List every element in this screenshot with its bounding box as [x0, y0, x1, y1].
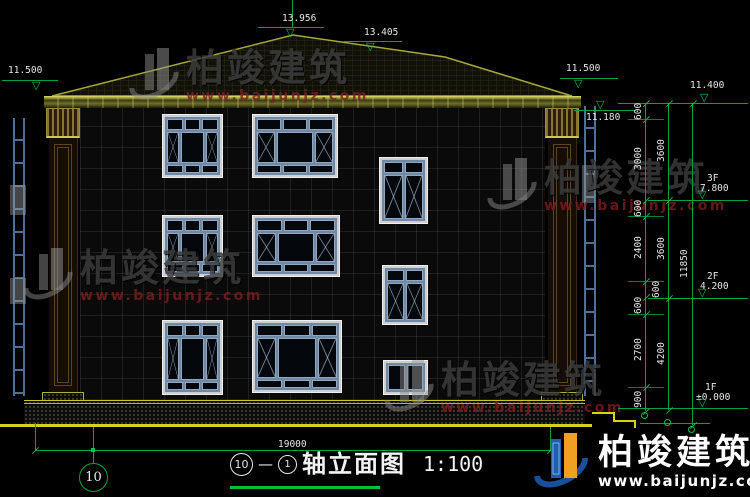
- dimension-label: 2400: [632, 231, 645, 265]
- window-1f-center: [252, 320, 342, 393]
- level-triangle-icon: ▽: [596, 99, 604, 110]
- level-triangle-icon: ▽: [700, 92, 708, 103]
- ground-line: [0, 424, 592, 427]
- level-line-ground: [640, 423, 710, 424]
- dimension-label: 4200: [655, 337, 668, 371]
- dimension-label: 600: [650, 272, 663, 306]
- level-triangle-icon: ▽: [286, 27, 294, 38]
- title-text: 轴立面图: [302, 452, 406, 476]
- wall-return-left: [10, 185, 26, 215]
- elevation-roof-eave: 11.400: [690, 81, 724, 91]
- chain-end-circle: [664, 419, 671, 426]
- axis-line-10: [93, 427, 94, 463]
- pilaster-capital-right: [545, 108, 579, 138]
- level-triangle-icon: ▽: [32, 80, 40, 91]
- dimension-label: 2700: [632, 333, 645, 367]
- entry-step: [613, 420, 635, 422]
- elevation-cornice-right: 11.180: [586, 113, 620, 123]
- level-triangle-icon: ▽: [698, 287, 706, 298]
- dimension-label: 900: [632, 382, 645, 416]
- baijun-logo-icon: [22, 246, 74, 306]
- baijun-logo-icon: [532, 430, 590, 494]
- window-stair-lower: [382, 265, 428, 325]
- dimension-label: 3600: [655, 134, 668, 168]
- chain-end-circle: [641, 412, 648, 419]
- drawing-title: 10 — 1 轴立面图 1:100: [230, 452, 483, 476]
- dimension-chain-overall: 11850: [692, 103, 693, 425]
- watermark-left: 柏竣建筑 www.baijunjz.com: [22, 246, 263, 306]
- title-scale: 1:100: [423, 452, 483, 476]
- elevation-eave-right: 11.500: [566, 64, 600, 74]
- dimension-chain-windows: 600 3000 600 2400 600 600 2700 900: [645, 103, 646, 411]
- level-triangle-icon: ▽: [366, 41, 374, 52]
- dimension-label-overall-height: 11850: [678, 244, 691, 284]
- title-dash: —: [258, 455, 273, 473]
- window-3f-center: [252, 114, 338, 178]
- window-stair-upper: [379, 157, 428, 224]
- title-axis-start: 10: [230, 453, 253, 476]
- bottom-dimension-line: [35, 450, 551, 451]
- watermark-bottom: 柏竣建筑 www.baijunjz.com: [383, 358, 624, 418]
- axis-bubble-10: 10: [79, 463, 108, 492]
- drainpipe-right: [584, 106, 596, 396]
- title-underline: [230, 486, 380, 489]
- window-2f-center: [252, 215, 340, 277]
- baijun-logo-icon: [128, 46, 180, 106]
- dimension-label-overall-width: 19000: [278, 440, 307, 450]
- elevation-ridge-secondary: 13.405: [364, 28, 398, 38]
- window-1f-left: [162, 320, 223, 395]
- dim-junction-dot: [91, 448, 95, 452]
- dimension-chain-storeys: 3600 3600 4200: [668, 103, 669, 410]
- dimension-label: 600: [632, 94, 645, 128]
- window-3f-left: [162, 114, 223, 178]
- dimension-label: 3600: [655, 232, 668, 266]
- title-axis-end: 1: [278, 455, 297, 474]
- dimension-label: 3000: [632, 142, 645, 176]
- baijun-logo-icon: [486, 156, 538, 216]
- watermark-right: 柏竣建筑 www.baijunjz.com: [486, 156, 727, 216]
- pilaster-capital-left: [46, 108, 80, 138]
- elevation-eave-left: 11.500: [8, 66, 42, 76]
- level-triangle-icon: ▽: [574, 78, 582, 89]
- level-triangle-icon: ▽: [698, 397, 706, 408]
- cad-elevation-drawing: 13.956 ▽ 13.405 ▽ 11.500 ▽ 11.500 ▽ ▽ 11…: [0, 0, 750, 497]
- dimension-label: 600: [632, 191, 645, 225]
- level-triangle-icon: ▽: [698, 189, 706, 200]
- watermark-brand-corner: 柏竣建筑 www.baijunjz.com: [532, 430, 750, 494]
- dim-extension-left: [35, 423, 36, 451]
- elevation-ridge-main: 13.956: [282, 14, 316, 24]
- watermark-roof: 柏竣建筑 www.baijunjz.com: [128, 46, 369, 106]
- dimension-label: 600: [632, 288, 645, 322]
- baijun-logo-icon: [383, 358, 435, 418]
- entry-step: [634, 420, 636, 428]
